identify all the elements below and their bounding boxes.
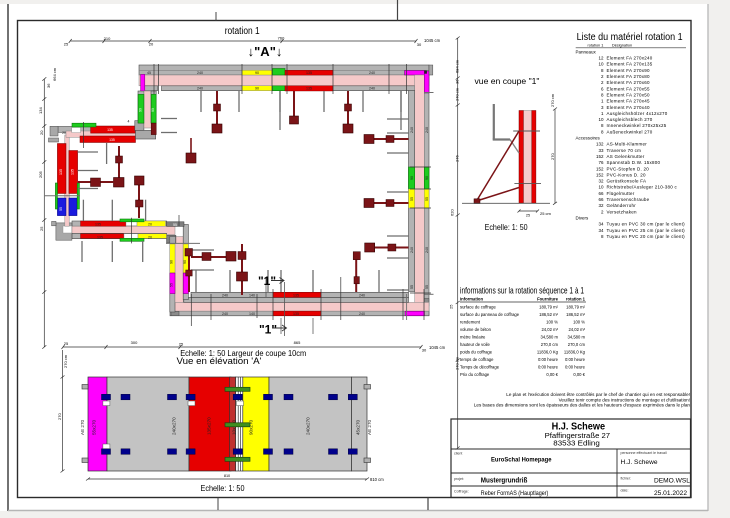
svg-text:1045 cm: 1045 cm — [429, 345, 446, 350]
svg-text:270: 270 — [550, 153, 555, 160]
svg-text:25: 25 — [449, 304, 454, 309]
svg-text:Spannstab D.W. 15x800: Spannstab D.W. 15x800 — [607, 160, 661, 165]
svg-text:PVC-Konus D. 20: PVC-Konus D. 20 — [607, 172, 647, 177]
svg-text:surface de coffrage: surface de coffrage — [460, 305, 496, 310]
svg-text:90: 90 — [138, 108, 142, 112]
svg-text:rotation 1: rotation 1 — [225, 26, 260, 37]
svg-text:240: 240 — [369, 71, 375, 75]
svg-text:0,00 €: 0,00 € — [573, 372, 585, 377]
svg-text:24,02 m³: 24,02 m³ — [541, 327, 558, 332]
svg-text:240: 240 — [410, 247, 414, 253]
svg-text:personne effectuant le travail: personne effectuant le travail — [621, 451, 667, 455]
svg-text:Element FA 270x60: Element FA 270x60 — [607, 80, 651, 85]
svg-text:240: 240 — [222, 312, 228, 316]
svg-text:25: 25 — [179, 342, 184, 347]
svg-text:10: 10 — [598, 117, 604, 122]
svg-text:36: 36 — [46, 83, 51, 88]
svg-text:134: 134 — [38, 107, 43, 114]
svg-text:Außeneckwinkel 270: Außeneckwinkel 270 — [607, 129, 653, 134]
svg-text:10: 10 — [598, 185, 604, 190]
svg-text:684 cm: 684 cm — [455, 59, 460, 73]
svg-text:33: 33 — [598, 148, 604, 153]
svg-text:0:00 heure: 0:00 heure — [538, 357, 559, 362]
svg-text:76: 76 — [598, 160, 604, 165]
svg-text:surface du panneau de coffrage: surface du panneau de coffrage — [460, 312, 520, 317]
svg-text:300: 300 — [131, 340, 138, 345]
svg-text:240: 240 — [425, 127, 429, 133]
svg-text:11836,0 Kg: 11836,0 Kg — [564, 350, 586, 355]
svg-text:Panneaux: Panneaux — [576, 49, 597, 54]
svg-text:Inneneckwinkel 270x25x25: Inneneckwinkel 270x25x25 — [607, 123, 667, 128]
svg-text:0,00 €: 0,00 € — [546, 372, 558, 377]
svg-text:date:: date: — [621, 489, 629, 493]
svg-text:30: 30 — [417, 42, 422, 47]
svg-text:180,79 m²: 180,79 m² — [566, 305, 585, 310]
svg-text:Element FA 270x80: Element FA 270x80 — [607, 74, 651, 79]
svg-text:Tuyau en PVC 20 cm (par le cli: Tuyau en PVC 20 cm (par le client) — [607, 234, 686, 239]
svg-text:Accessoires: Accessoires — [576, 136, 601, 141]
svg-text:186,52 m²: 186,52 m² — [539, 312, 558, 317]
svg-text:Echelle: 1: 50: Echelle: 1: 50 — [485, 223, 528, 232]
svg-text:rendement: rendement — [460, 320, 481, 325]
svg-text:projet:: projet: — [454, 477, 464, 481]
svg-text:135: 135 — [97, 236, 103, 240]
svg-text:25: 25 — [39, 226, 44, 231]
svg-text:55: 55 — [425, 197, 429, 201]
svg-text:66: 66 — [598, 197, 604, 202]
svg-text:25: 25 — [526, 214, 530, 218]
svg-text:AE 270: AE 270 — [367, 419, 372, 435]
svg-text:Divers: Divers — [576, 215, 590, 220]
svg-text:32: 32 — [598, 179, 604, 184]
svg-text:Fourniture: Fourniture — [537, 297, 559, 302]
svg-text:Geländerrohr: Geländerrohr — [607, 203, 637, 208]
svg-text:45x270: 45x270 — [356, 419, 361, 435]
svg-text:25 cm: 25 cm — [540, 211, 552, 216]
svg-text:20: 20 — [149, 42, 154, 47]
svg-text:H.J. Schewe: H.J. Schewe — [621, 459, 658, 466]
svg-text:34: 34 — [598, 228, 604, 233]
svg-text:Element FA 270x240: Element FA 270x240 — [607, 56, 653, 61]
svg-text:Traversenschraube: Traversenschraube — [607, 197, 650, 202]
svg-text:Mustergrundriß: Mustergrundriß — [481, 477, 528, 484]
svg-text:90: 90 — [169, 260, 173, 264]
svg-text:135: 135 — [306, 71, 312, 75]
svg-text:AS Gelenkmutter: AS Gelenkmutter — [607, 154, 645, 159]
svg-text:1045 cm: 1045 cm — [424, 38, 441, 43]
svg-text:Element FA 270x45: Element FA 270x45 — [607, 99, 651, 104]
svg-text:rotation 1: rotation 1 — [566, 297, 586, 302]
svg-text:information: information — [460, 297, 483, 302]
svg-text:270 cm: 270 cm — [455, 87, 460, 101]
svg-text:620: 620 — [450, 209, 455, 216]
svg-text:Coffrage:: Coffrage: — [454, 490, 469, 494]
svg-text:20: 20 — [148, 222, 152, 226]
svg-text:32: 32 — [598, 203, 604, 208]
svg-text:760: 760 — [278, 36, 285, 41]
svg-text:11836,0 Kg: 11836,0 Kg — [537, 350, 559, 355]
svg-text:135: 135 — [293, 312, 299, 316]
svg-text:135: 135 — [71, 169, 75, 175]
svg-text:240: 240 — [369, 87, 375, 91]
svg-text:hauteur de voile: hauteur de voile — [460, 342, 490, 347]
svg-text:12: 12 — [598, 56, 604, 61]
svg-text:270,0 cm: 270,0 cm — [541, 342, 559, 347]
svg-text:10: 10 — [598, 62, 604, 67]
svg-text:20: 20 — [39, 130, 44, 135]
svg-text:55: 55 — [425, 285, 429, 289]
svg-text:"1": "1" — [259, 323, 277, 337]
svg-text:Element FA 270x55: Element FA 270x55 — [607, 86, 651, 91]
svg-text:240: 240 — [425, 247, 429, 253]
svg-text:Versetzhaken: Versetzhaken — [607, 209, 638, 214]
svg-text:240: 240 — [197, 87, 203, 91]
svg-text:55: 55 — [173, 223, 177, 227]
svg-text:55: 55 — [410, 285, 414, 289]
svg-text:152: 152 — [596, 154, 604, 159]
svg-text:30: 30 — [422, 348, 427, 353]
svg-text:210: 210 — [104, 36, 111, 41]
svg-text:100 %: 100 % — [546, 320, 558, 325]
svg-text:Les bases des dimensions sont: Les bases des dimensions sont les épaiss… — [474, 403, 691, 408]
svg-text:10x270: 10x270 — [232, 419, 237, 435]
svg-text:Reber FormAS (Hauptlager): Reber FormAS (Hauptlager) — [481, 490, 549, 497]
svg-text:135: 135 — [95, 222, 101, 226]
svg-text:informations sur la rotation: informations sur la rotation séquence 1 … — [460, 286, 584, 296]
svg-text:100 %: 100 % — [573, 320, 585, 325]
svg-text:135: 135 — [293, 294, 299, 298]
svg-text:135x270: 135x270 — [207, 417, 212, 435]
svg-text:664 cm: 664 cm — [52, 67, 57, 81]
svg-text:Tuyau en PVC 30 cm (par le cli: Tuyau en PVC 30 cm (par le client) — [607, 222, 686, 227]
svg-text:4: 4 — [128, 120, 130, 124]
svg-text:55: 55 — [169, 283, 173, 287]
svg-text:Tuyau en PVC 25 cm (par le cli: Tuyau en PVC 25 cm (par le client) — [607, 228, 686, 233]
svg-text:Prix du coffrage: Prix du coffrage — [460, 372, 490, 377]
svg-text:AS-Multi-Klammer: AS-Multi-Klammer — [607, 142, 648, 147]
svg-text:poids du coffrage: poids du coffrage — [460, 350, 493, 355]
svg-text:PVC-Stopfen D. 20: PVC-Stopfen D. 20 — [607, 166, 650, 171]
svg-text:fichier:: fichier: — [621, 477, 632, 481]
svg-text:135: 135 — [306, 87, 312, 91]
svg-text:186,52 m²: 186,52 m² — [566, 312, 585, 317]
svg-text:83533 Edling: 83533 Edling — [553, 438, 600, 447]
svg-text:24,02 m³: 24,02 m³ — [568, 327, 585, 332]
svg-text:Echelle: 1: 50: Echelle: 1: 50 — [201, 484, 245, 493]
svg-text:90: 90 — [425, 176, 429, 180]
svg-text:Richtstrebe/Ausleger 210-380 c: Richtstrebe/Ausleger 210-380 c — [607, 185, 678, 190]
svg-text:25.01.2022: 25.01.2022 — [654, 490, 687, 497]
svg-text:Traverse 70 cm: Traverse 70 cm — [607, 148, 642, 153]
svg-text:45: 45 — [147, 71, 151, 75]
svg-text:135: 135 — [59, 169, 63, 175]
svg-text:20: 20 — [148, 236, 152, 240]
svg-text:865: 865 — [294, 340, 301, 345]
svg-text:Flügelmutter: Flügelmutter — [607, 191, 635, 196]
svg-text:Element FA 270x90: Element FA 270x90 — [607, 68, 651, 73]
svg-text:240x270: 240x270 — [306, 417, 311, 435]
svg-text:55x270: 55x270 — [92, 419, 97, 435]
svg-text:0:00 heure: 0:00 heure — [565, 357, 586, 362]
svg-text:810 cm: 810 cm — [370, 477, 384, 482]
svg-text:270 cm: 270 cm — [63, 354, 68, 368]
svg-text:90: 90 — [183, 260, 187, 264]
svg-text:36: 36 — [455, 79, 460, 84]
svg-text:270 cm: 270 cm — [455, 356, 460, 370]
svg-text:55: 55 — [410, 197, 414, 201]
svg-text:152: 152 — [596, 172, 604, 177]
svg-text:90: 90 — [410, 176, 414, 180]
svg-text:810: 810 — [224, 474, 230, 478]
svg-text:Ausgleichsblech 270: Ausgleichsblech 270 — [607, 117, 653, 122]
svg-text:135: 135 — [109, 138, 115, 142]
svg-text:34: 34 — [598, 222, 604, 227]
svg-text:20: 20 — [62, 131, 66, 135]
svg-text:34,580 m: 34,580 m — [541, 335, 559, 340]
svg-text:0:00 heure: 0:00 heure — [565, 365, 586, 370]
svg-text:90: 90 — [255, 87, 259, 91]
svg-text:90x270: 90x270 — [249, 419, 254, 435]
svg-text:Veuillez tenir compte des inst: Veuillez tenir compte des instructions d… — [559, 397, 690, 402]
svg-text:270 cm: 270 cm — [550, 93, 555, 107]
svg-text:volume de béton: volume de béton — [460, 327, 492, 332]
svg-text:Liste du matériel rotation 1: Liste du matériel rotation 1 — [577, 32, 683, 43]
svg-text:Temps de décoffrage: Temps de décoffrage — [460, 365, 500, 370]
svg-text:140: 140 — [249, 294, 255, 298]
svg-text:"1": "1" — [258, 274, 276, 288]
svg-text:↓"A"↓: ↓"A"↓ — [248, 44, 283, 59]
svg-text:90: 90 — [151, 108, 155, 112]
svg-text:240: 240 — [222, 294, 228, 298]
svg-text:55: 55 — [59, 207, 63, 211]
svg-text:66: 66 — [598, 191, 604, 196]
svg-text:Le plan et l'exécution doivent: Le plan et l'exécution doivent être cont… — [506, 392, 690, 397]
svg-text:Gerüstkonsole FA: Gerüstkonsole FA — [607, 179, 647, 184]
svg-text:240: 240 — [359, 294, 365, 298]
svg-text:DEMO.WSL: DEMO.WSL — [654, 477, 690, 484]
svg-text:vue en coupe "1": vue en coupe "1" — [475, 76, 540, 86]
svg-text:25: 25 — [64, 341, 69, 346]
svg-text:240: 240 — [197, 71, 203, 75]
svg-text:mètre linéaire: mètre linéaire — [460, 335, 486, 340]
svg-text:276: 276 — [455, 155, 460, 162]
svg-text:rotation 1: rotation 1 — [588, 44, 604, 48]
svg-text:270,0 cm: 270,0 cm — [568, 342, 586, 347]
svg-text:180,79 m²: 180,79 m² — [539, 305, 558, 310]
svg-text:AE 270: AE 270 — [80, 419, 85, 435]
svg-text:client: client — [454, 452, 462, 456]
svg-text:135: 135 — [107, 128, 113, 132]
svg-text:152: 152 — [596, 166, 604, 171]
svg-text:240: 240 — [410, 127, 414, 133]
svg-text:205: 205 — [38, 171, 43, 178]
svg-text:Ausgleichshölzer 4x12x270: Ausgleichshölzer 4x12x270 — [607, 111, 668, 116]
svg-text:temps de coffrage: temps de coffrage — [460, 357, 494, 362]
svg-text:0:00 heure: 0:00 heure — [538, 365, 559, 370]
svg-text:240: 240 — [359, 312, 365, 316]
svg-text:270: 270 — [57, 413, 62, 420]
svg-text:Element FA 270x135: Element FA 270x135 — [607, 62, 653, 67]
svg-text:25: 25 — [64, 42, 69, 47]
svg-text:Element FA 270x40: Element FA 270x40 — [607, 105, 651, 110]
svg-text:132: 132 — [596, 142, 604, 147]
svg-text:EuroSchal Homepage: EuroSchal Homepage — [491, 457, 552, 464]
svg-text:Vue en élévation 'A': Vue en élévation 'A' — [177, 356, 262, 366]
svg-text:90: 90 — [255, 71, 259, 75]
svg-text:140: 140 — [249, 312, 255, 316]
svg-text:Désignation: Désignation — [612, 44, 632, 48]
svg-text:240x270: 240x270 — [172, 417, 177, 435]
svg-text:Element FA 270x50: Element FA 270x50 — [607, 92, 651, 97]
svg-text:34,580 m: 34,580 m — [568, 335, 586, 340]
